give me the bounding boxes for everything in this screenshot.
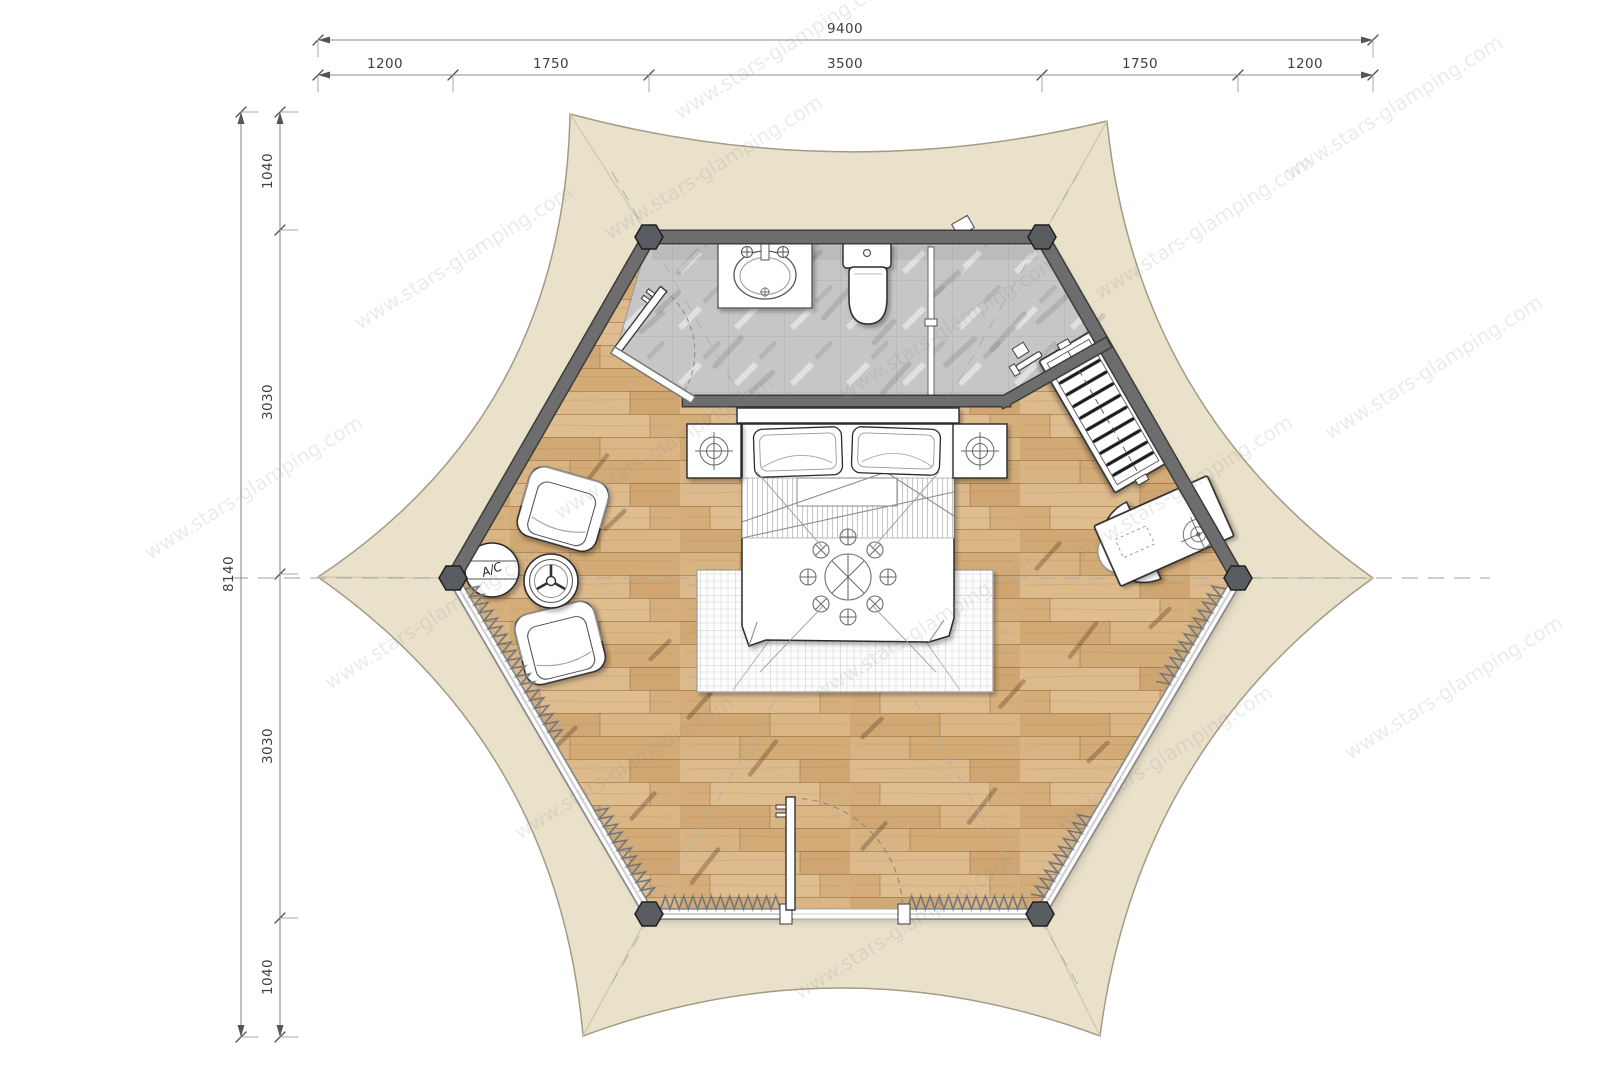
floor-plan-page: A/C xyxy=(0,0,1600,1067)
floor-plan-drawing: A/C xyxy=(0,0,1600,1067)
dim-v-seg-2: 3030 xyxy=(260,728,276,764)
headboard xyxy=(737,408,959,423)
watermark-text: www.stars-glamping.com xyxy=(1280,30,1507,184)
dim-h-seg-0: 1200 xyxy=(367,56,403,72)
dim-h-seg-1: 1750 xyxy=(533,56,569,72)
corner-post xyxy=(635,225,663,249)
vanity xyxy=(718,242,812,308)
dim-labels-horizontal: 9400 1200 1750 3500 1750 1200 xyxy=(367,21,1323,72)
dim-v-seg-1: 3030 xyxy=(260,384,276,420)
watermark-text: www.stars-glamping.com xyxy=(1320,290,1547,444)
faucet xyxy=(761,243,769,260)
dim-h-seg-2: 3500 xyxy=(827,56,863,72)
nightstand-right xyxy=(953,424,1007,478)
watermark-text: www.stars-glamping.com xyxy=(1340,610,1567,764)
corner-post xyxy=(635,902,663,926)
pillow-right xyxy=(851,426,941,475)
dim-h-seg-4: 1200 xyxy=(1287,56,1323,72)
entry-door-leaf xyxy=(786,797,795,910)
pillow-left xyxy=(753,426,843,477)
toilet xyxy=(843,242,891,324)
watermark-text: www.stars-glamping.com xyxy=(140,410,367,564)
dim-v-seg-3: 1040 xyxy=(260,959,276,995)
corner-post xyxy=(1026,902,1054,926)
dim-labels-vertical: 8140 1040 3030 3030 1040 xyxy=(221,153,276,995)
corner-post xyxy=(1028,225,1056,249)
dim-v-total: 8140 xyxy=(221,556,237,592)
dim-v-seg-0: 1040 xyxy=(260,153,276,189)
blanket-pocket xyxy=(797,478,897,506)
dim-h-seg-3: 1750 xyxy=(1122,56,1158,72)
corner-post xyxy=(1224,566,1252,590)
flush-button xyxy=(864,250,871,257)
